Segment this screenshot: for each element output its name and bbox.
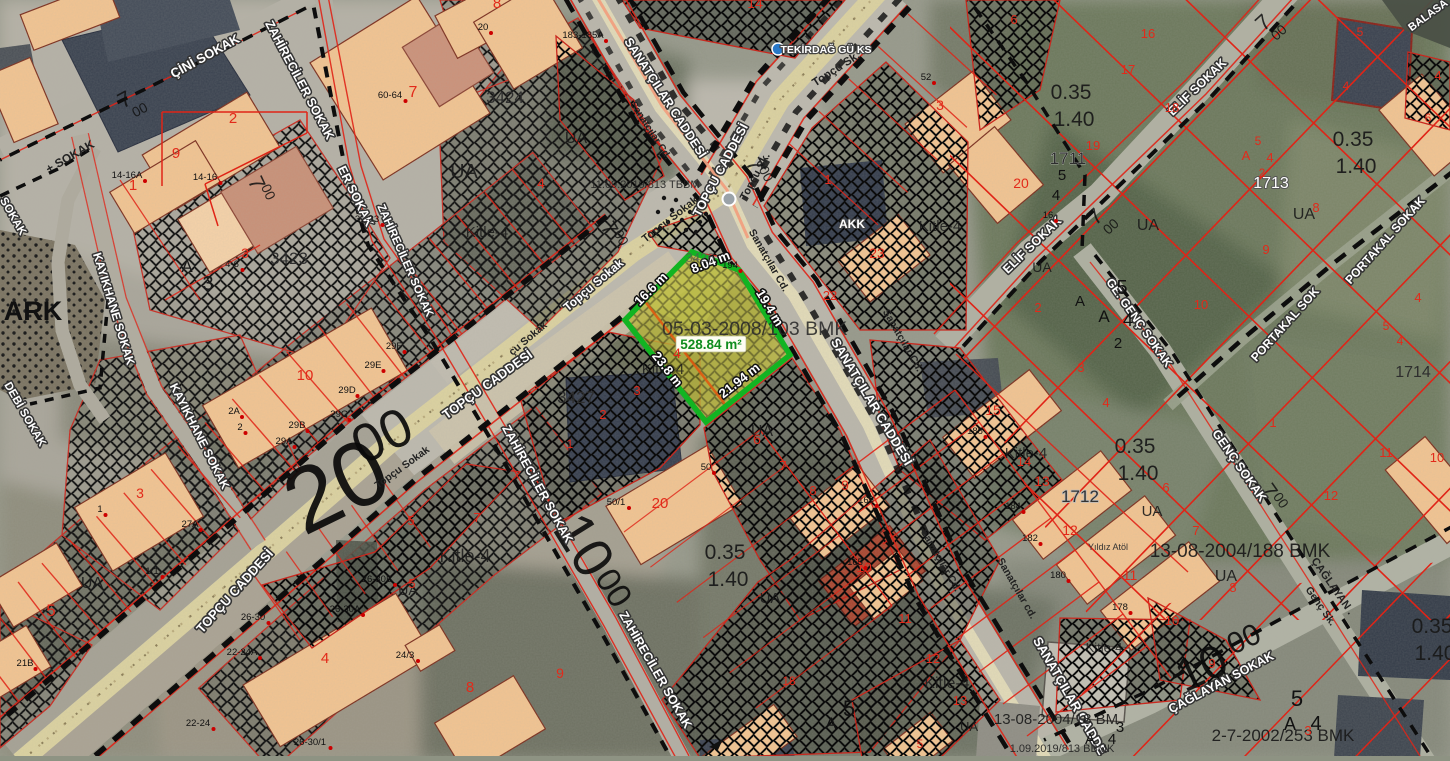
svg-text:22-24: 22-24	[186, 718, 210, 729]
svg-text:5: 5	[1291, 686, 1303, 711]
svg-text:9: 9	[1262, 242, 1269, 257]
svg-text:1.40: 1.40	[1415, 642, 1450, 665]
svg-text:8: 8	[493, 0, 501, 12]
svg-text:3: 3	[1116, 719, 1124, 736]
svg-text:194: 194	[722, 260, 738, 271]
svg-text:2: 2	[1114, 335, 1122, 352]
svg-text:A: A	[1284, 714, 1296, 734]
svg-text:8: 8	[809, 483, 816, 498]
svg-text:1: 1	[824, 172, 831, 187]
svg-text:UA: UA	[1142, 503, 1163, 520]
svg-text:5: 5	[408, 576, 415, 591]
svg-text:19: 19	[1086, 138, 1100, 153]
svg-text:UA: UA	[1137, 217, 1160, 234]
svg-text:6: 6	[1162, 480, 1169, 495]
svg-text:UA: UA	[81, 575, 104, 592]
svg-text:3424: 3424	[486, 88, 524, 107]
svg-text:1.40: 1.40	[1336, 155, 1377, 178]
svg-text:24/3: 24/3	[396, 650, 415, 661]
svg-text:Kitle-4: Kitle-4	[924, 675, 969, 692]
svg-text:AKK: AKK	[839, 217, 865, 231]
svg-text:4-6: 4-6	[225, 259, 239, 270]
svg-text:12: 12	[926, 651, 940, 666]
svg-text:7: 7	[473, 510, 480, 525]
svg-text:4: 4	[1266, 150, 1273, 165]
svg-text:13-08-2004/18 BM: 13-08-2004/18 BM	[994, 711, 1118, 728]
svg-text:UA: UA	[450, 161, 478, 183]
svg-text:23: 23	[869, 245, 885, 261]
svg-text:4: 4	[1414, 290, 1421, 305]
svg-text:12: 12	[1062, 522, 1078, 538]
svg-text:1711: 1711	[1050, 149, 1087, 168]
svg-text:0.35: 0.35	[705, 541, 746, 564]
svg-text:6: 6	[1010, 12, 1017, 27]
svg-text:10: 10	[297, 367, 314, 384]
svg-text:4: 4	[321, 650, 329, 667]
svg-text:4: 4	[673, 345, 681, 361]
svg-text:6: 6	[1425, 111, 1432, 125]
svg-text:11: 11	[898, 611, 912, 626]
svg-text:2: 2	[237, 422, 242, 433]
svg-text:5: 5	[1357, 25, 1364, 39]
svg-text:2: 2	[1034, 300, 1041, 315]
svg-text:A: A	[181, 257, 193, 276]
svg-text:4: 4	[1052, 187, 1060, 204]
svg-text:11: 11	[1379, 445, 1393, 460]
svg-text:29F: 29F	[386, 341, 403, 352]
svg-text:3427: 3427	[557, 388, 595, 407]
svg-text:52: 52	[921, 72, 932, 83]
svg-text:5: 5	[917, 737, 924, 751]
svg-text:165: 165	[847, 557, 863, 568]
svg-text:Yıldız Atöl: Yıldız Atöl	[1088, 542, 1128, 552]
svg-text:31-33: 31-33	[355, 214, 379, 225]
svg-text:29E: 29E	[365, 360, 382, 371]
svg-text:Kitle-4: Kitle-4	[439, 546, 490, 566]
svg-text:4: 4	[537, 175, 545, 191]
svg-text:Kitle-4: Kitle-4	[466, 224, 509, 241]
svg-text:1712: 1712	[1061, 487, 1099, 506]
svg-text:14: 14	[1017, 454, 1031, 469]
svg-text:26-30: 26-30	[241, 612, 265, 623]
svg-text:1: 1	[567, 437, 574, 451]
svg-text:2: 2	[229, 110, 237, 127]
svg-text:26-30/1: 26-30/1	[294, 737, 326, 748]
svg-text:182: 182	[1022, 533, 1038, 544]
svg-text:1: 1	[97, 504, 102, 515]
svg-text:18: 18	[782, 674, 796, 688]
svg-text:1/1: 1/1	[145, 566, 158, 577]
svg-text:5: 5	[46, 601, 55, 620]
svg-text:5: 5	[407, 513, 414, 528]
svg-text:60-64: 60-64	[378, 90, 402, 101]
svg-text:21B: 21B	[17, 658, 34, 669]
svg-text:TEKİRDAĞ GÜ KS: TEKİRDAĞ GÜ KS	[780, 43, 871, 56]
svg-text:9: 9	[556, 665, 564, 681]
svg-text:12: 12	[1324, 488, 1338, 503]
svg-text:27A: 27A	[182, 519, 200, 530]
svg-text:29D: 29D	[338, 385, 356, 396]
svg-text:9: 9	[841, 477, 849, 493]
svg-text:50: 50	[701, 462, 712, 473]
svg-text:0.35: 0.35	[1051, 81, 1092, 104]
svg-text:11: 11	[1123, 567, 1138, 583]
svg-text:UA: UA	[1032, 259, 1052, 275]
svg-text:1.09.2019/813 BBMK: 1.09.2019/813 BBMK	[1010, 743, 1115, 755]
svg-text:2: 2	[599, 407, 606, 422]
svg-text:A: A	[1085, 731, 1095, 748]
svg-text:3426: 3426	[686, 250, 715, 265]
svg-text:A: A	[1242, 148, 1251, 163]
svg-text:3: 3	[1077, 360, 1084, 375]
svg-text:183-185A: 183-185A	[562, 30, 604, 41]
svg-text:5: 5	[1255, 134, 1262, 148]
svg-text:169: 169	[858, 495, 874, 506]
svg-text:3423: 3423	[270, 249, 308, 268]
svg-text:22-24A: 22-24A	[227, 647, 258, 658]
svg-text:UA: UA	[565, 130, 588, 147]
svg-text:0.35: 0.35	[1412, 615, 1450, 638]
svg-text:4: 4	[1102, 395, 1109, 410]
svg-text:8: 8	[1312, 200, 1319, 215]
svg-text:0.35: 0.35	[1115, 435, 1156, 458]
svg-text:ARK: ARK	[4, 296, 63, 326]
svg-text:29A: 29A	[276, 436, 294, 447]
svg-text:3: 3	[241, 245, 249, 261]
svg-text:7: 7	[1192, 523, 1199, 538]
svg-text:188: 188	[967, 426, 983, 437]
svg-text:7: 7	[779, 458, 786, 473]
svg-text:5: 5	[1058, 167, 1066, 184]
svg-text:10: 10	[1194, 297, 1208, 312]
svg-text:4: 4	[1310, 713, 1321, 735]
svg-text:26-30B: 26-30B	[362, 574, 393, 585]
svg-text:A: A	[825, 714, 837, 733]
svg-text:1714: 1714	[1395, 364, 1431, 381]
svg-text:3: 3	[633, 383, 640, 398]
svg-text:184: 184	[1005, 501, 1021, 512]
svg-text:9: 9	[172, 145, 180, 162]
svg-text:3: 3	[936, 97, 944, 113]
svg-text:10: 10	[1430, 450, 1444, 465]
svg-text:2A: 2A	[228, 406, 240, 417]
svg-text:4: 4	[1397, 334, 1404, 348]
svg-text:4: 4	[1343, 79, 1350, 93]
svg-text:0.35: 0.35	[1333, 128, 1374, 151]
svg-text:4: 4	[1434, 68, 1441, 83]
svg-text:18: 18	[1165, 100, 1179, 115]
svg-text:UA: UA	[960, 719, 978, 734]
svg-text:8: 8	[466, 679, 474, 696]
svg-text:22: 22	[823, 288, 837, 303]
svg-text:180: 180	[1050, 570, 1066, 581]
svg-text:14-16A: 14-16A	[112, 170, 143, 181]
svg-text:29B: 29B	[289, 420, 306, 431]
svg-text:178: 178	[1112, 602, 1128, 613]
svg-text:1.40: 1.40	[708, 568, 749, 591]
svg-text:17: 17	[1121, 62, 1135, 77]
svg-text:13: 13	[1034, 473, 1050, 489]
svg-text:14-16: 14-16	[193, 172, 217, 183]
svg-text:1.40: 1.40	[1054, 108, 1095, 131]
svg-text:20: 20	[478, 22, 489, 33]
svg-text:528.84 m²: 528.84 m²	[680, 337, 742, 352]
svg-text:9: 9	[1208, 656, 1215, 671]
svg-text:15: 15	[985, 402, 1001, 418]
svg-text:Kitle-4: Kitle-4	[919, 218, 962, 235]
svg-text:16: 16	[1043, 210, 1054, 221]
svg-text:20: 20	[652, 495, 669, 512]
svg-text:UA: UA	[760, 590, 781, 607]
svg-text:2: 2	[1259, 166, 1266, 180]
svg-text:3: 3	[202, 273, 213, 295]
svg-text:14: 14	[747, 0, 763, 11]
svg-text:5: 5	[1383, 319, 1390, 333]
svg-text:11.09.2019/813 TBBM: 11.09.2019/813 TBBM	[590, 179, 699, 191]
svg-text:1.40: 1.40	[1118, 462, 1159, 485]
svg-text:16: 16	[1141, 26, 1155, 41]
svg-text:20: 20	[1013, 175, 1029, 191]
svg-text:13-08-2004/188 BMK: 13-08-2004/188 BMK	[1150, 541, 1331, 562]
svg-text:29C: 29C	[330, 409, 348, 420]
svg-text:A: A	[1098, 307, 1110, 326]
svg-text:4: 4	[1123, 310, 1133, 330]
svg-text:5: 5	[843, 696, 855, 721]
svg-text:5: 5	[1116, 277, 1127, 299]
svg-text:13: 13	[953, 693, 967, 708]
svg-text:6: 6	[753, 431, 761, 447]
svg-text:7: 7	[409, 84, 418, 101]
svg-text:A: A	[1075, 293, 1085, 310]
svg-text:8: 8	[1229, 580, 1236, 595]
svg-text:3: 3	[136, 485, 144, 501]
svg-text:Kitle-4: Kitle-4	[1086, 640, 1123, 655]
svg-text:10: 10	[1165, 613, 1179, 628]
svg-text:1: 1	[1269, 415, 1276, 430]
svg-text:50/1: 50/1	[607, 497, 626, 508]
svg-text:26-30A: 26-30A	[330, 604, 361, 615]
